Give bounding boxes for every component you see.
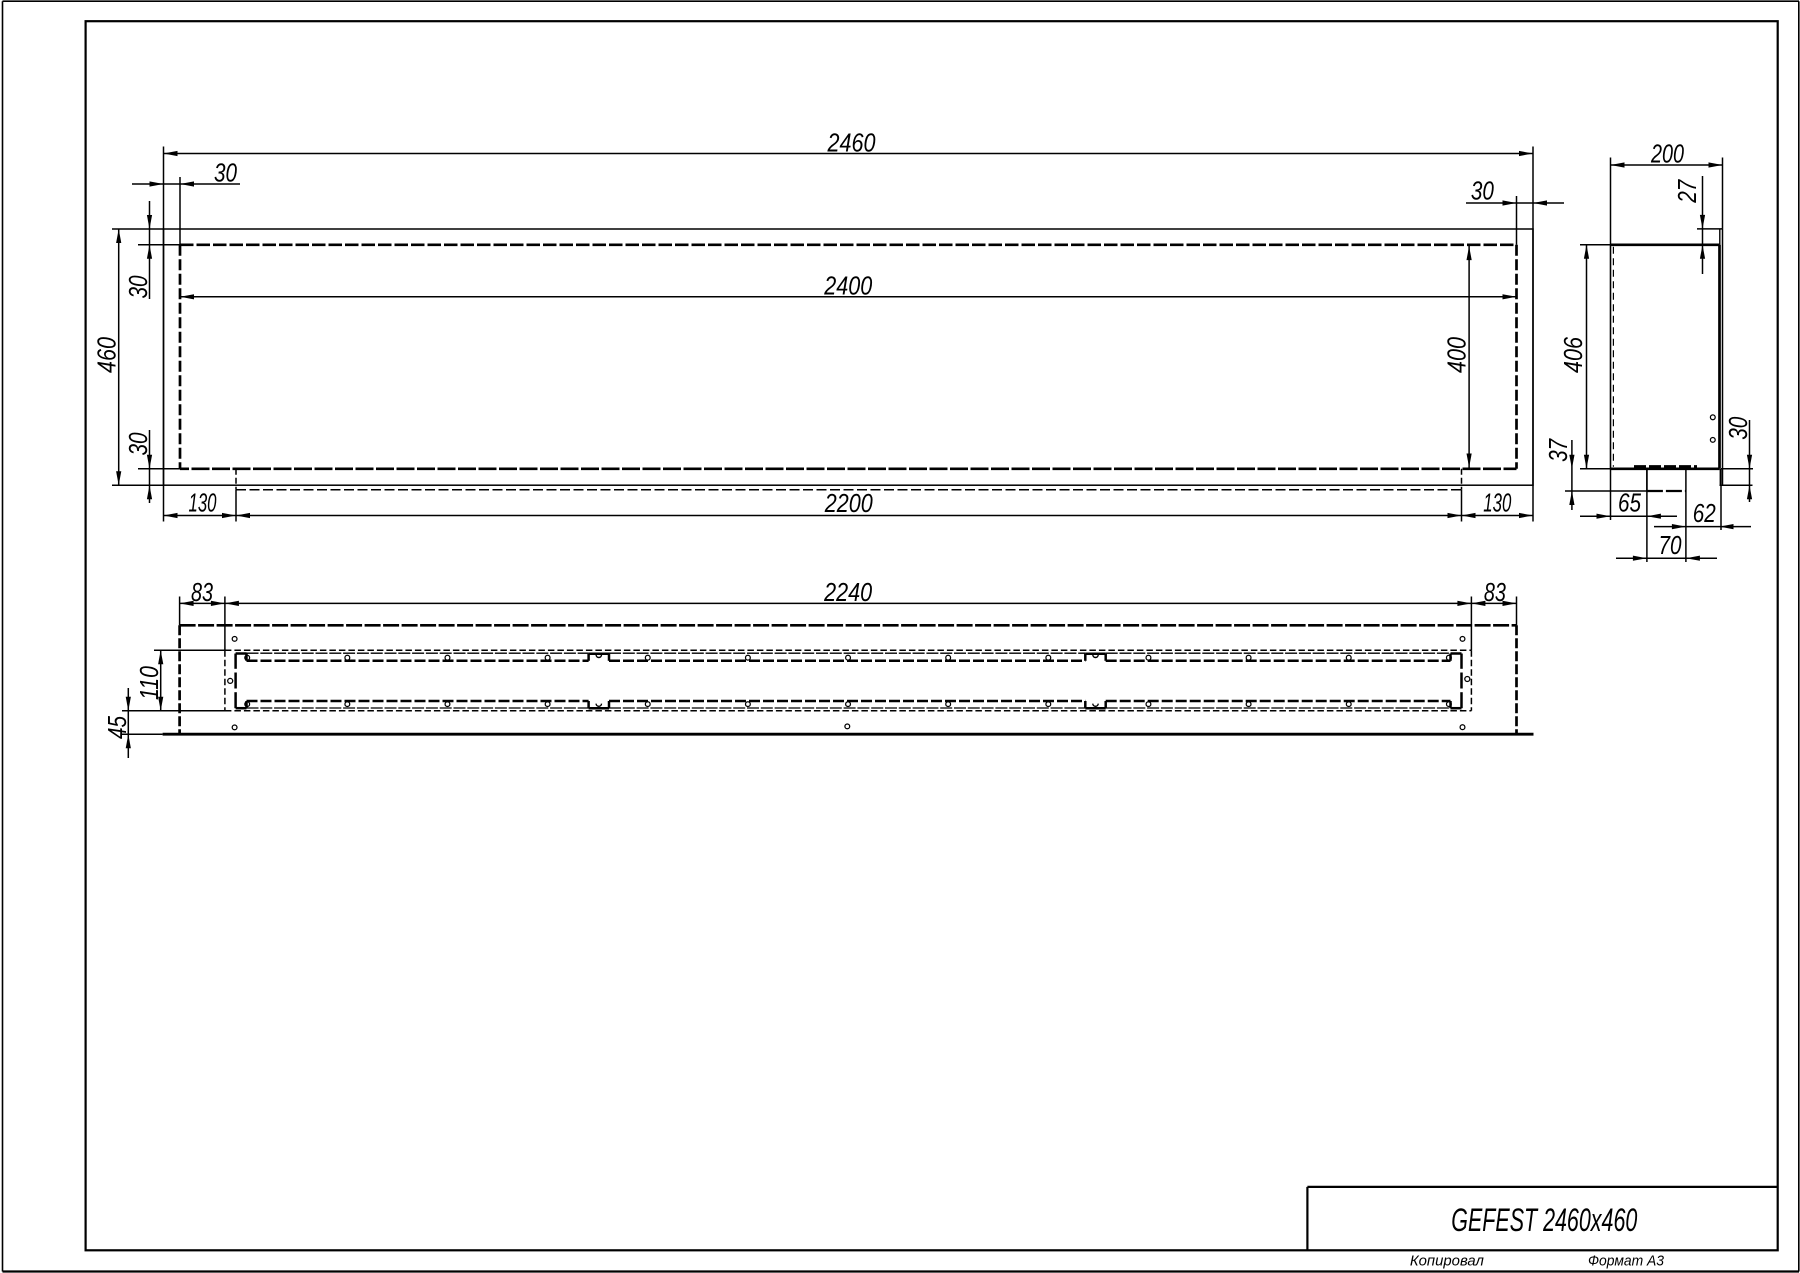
- svg-text:Формат А3: Формат А3: [1588, 1253, 1664, 1270]
- svg-text:400: 400: [1442, 337, 1472, 373]
- svg-text:406: 406: [1558, 337, 1588, 373]
- svg-text:83: 83: [191, 577, 213, 607]
- svg-text:130: 130: [1483, 488, 1511, 518]
- svg-text:Копировал: Копировал: [1410, 1253, 1484, 1270]
- svg-text:2200: 2200: [824, 488, 873, 518]
- svg-text:2240: 2240: [823, 577, 872, 607]
- svg-text:2400: 2400: [823, 270, 872, 300]
- svg-text:30: 30: [1471, 176, 1494, 206]
- svg-text:45: 45: [102, 716, 132, 739]
- svg-text:70: 70: [1659, 530, 1682, 560]
- svg-text:30: 30: [123, 432, 153, 455]
- svg-text:65: 65: [1618, 488, 1641, 518]
- svg-text:30: 30: [1723, 416, 1753, 439]
- svg-text:200: 200: [1650, 139, 1684, 169]
- svg-text:GEFEST 2460x460: GEFEST 2460x460: [1451, 1202, 1637, 1238]
- svg-text:110: 110: [134, 666, 164, 700]
- svg-text:130: 130: [189, 488, 217, 518]
- svg-text:30: 30: [214, 158, 237, 188]
- svg-text:62: 62: [1693, 498, 1716, 528]
- svg-text:83: 83: [1484, 577, 1506, 607]
- svg-text:37: 37: [1543, 438, 1573, 462]
- svg-text:2460: 2460: [827, 128, 876, 158]
- svg-text:460: 460: [92, 337, 122, 373]
- svg-text:30: 30: [123, 275, 153, 298]
- svg-text:27: 27: [1672, 179, 1702, 204]
